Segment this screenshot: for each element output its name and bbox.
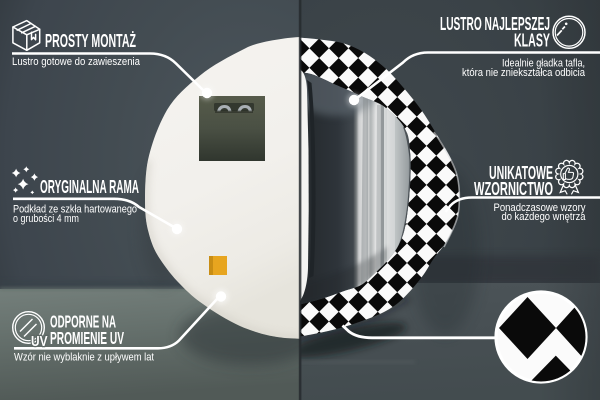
svg-text:która nie zniekształca odbicia: która nie zniekształca odbicia: [462, 67, 586, 79]
svg-text:KLASY: KLASY: [514, 31, 550, 51]
svg-text:PROSTY MONTAŻ: PROSTY MONTAŻ: [45, 31, 136, 51]
svg-text:ORYGINALNA RAMA: ORYGINALNA RAMA: [40, 177, 139, 197]
svg-text:Lustro gotowe do zawieszenia: Lustro gotowe do zawieszenia: [12, 56, 141, 68]
svg-text:PROMIENIE UV: PROMIENIE UV: [50, 328, 124, 348]
svg-text:Wzór nie wyblaknie z upływem l: Wzór nie wyblaknie z upływem lat: [14, 352, 155, 364]
svg-text:o grubości 4 mm: o grubości 4 mm: [13, 213, 79, 225]
svg-text:WZORNICTWO: WZORNICTWO: [474, 179, 553, 199]
svg-text:UV: UV: [31, 334, 48, 350]
svg-text:do każdego wnętrza: do każdego wnętrza: [502, 211, 587, 223]
